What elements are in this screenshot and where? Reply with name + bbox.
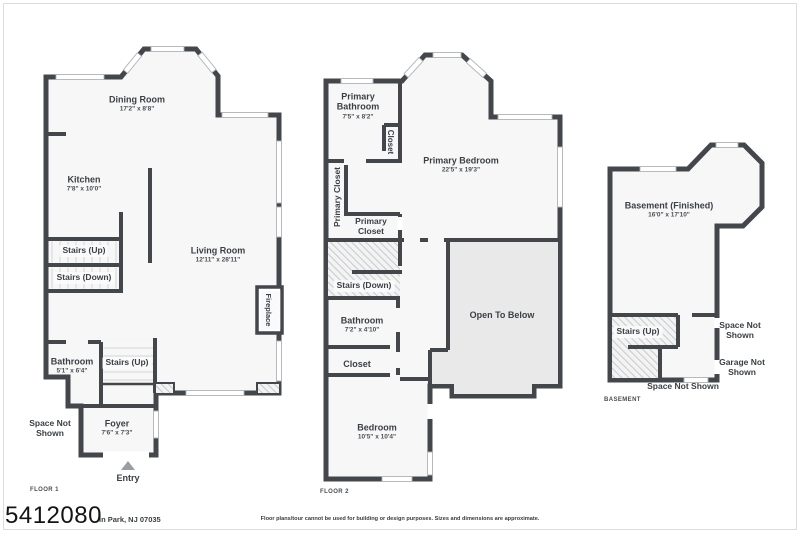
room-label-bedroom: Bedroom 10'5" x 10'4"	[357, 423, 397, 442]
watermark-number: 5412080	[5, 502, 102, 530]
label-garage-not-shown: Garage Not Shown	[715, 358, 769, 378]
room-label-bathroom-f2: Bathroom 7'2" x 4'10"	[341, 316, 384, 335]
label-space-not-shown-right: Space Not Shown	[715, 321, 765, 341]
room-label-dining-room: Dining Room 17'2" x 8'8"	[109, 95, 165, 114]
basement-plan	[610, 143, 762, 383]
floor-plan-page: Dining Room 17'2" x 8'8" Kitchen 7'8" x …	[0, 0, 800, 533]
room-label-stairs-up-basement: Stairs (Up)	[614, 326, 663, 338]
caption-basement: BASEMENT	[604, 397, 641, 403]
bedroom-door-opening	[428, 404, 433, 419]
basement-stairs-hatch	[612, 345, 658, 378]
room-label-bathroom-f1: Bathroom 5'1" x 6'4"	[51, 357, 94, 376]
closet-door-opening	[398, 217, 403, 230]
room-label-primary-bedroom: Primary Bedroom 22'5" x 19'3"	[423, 156, 499, 175]
label-space-not-shown-bottom: Space Not Shown	[647, 382, 719, 392]
room-label-closet-f2: Closet	[343, 359, 371, 369]
room-label-kitchen: Kitchen 7'8" x 10'0"	[67, 175, 102, 194]
entry-door-opening	[103, 452, 149, 459]
porch-post	[155, 383, 174, 394]
room-label-primary-closet-corridor: Primary Closet	[327, 167, 345, 227]
room-label-stairs-down-f2: Stairs (Down)	[334, 280, 395, 292]
room-label-primary-bathroom: Primary Bathroom 7'5" x 8'2"	[332, 91, 384, 120]
room-label-basement-finished: Basement (Finished) 16'0" x 17'10"	[625, 201, 714, 220]
room-label-closet-small: Closet	[383, 130, 401, 154]
room-label-stairs-up-main: Stairs (Up)	[60, 245, 109, 257]
room-label-stairs-up-entry: Stairs (Up)	[103, 357, 152, 369]
label-fireplace: Fireplace	[260, 291, 280, 330]
label-space-not-shown-f1: Space Not Shown	[26, 419, 74, 439]
floor-plan-graphic	[0, 0, 800, 533]
entry-arrow-icon	[121, 461, 135, 470]
caption-floor1: FLOOR 1	[30, 487, 59, 493]
label-open-to-below: Open To Below	[470, 310, 535, 320]
room-label-primary-closet-room: Primary Closet	[349, 217, 393, 237]
caption-floor2: FLOOR 2	[320, 489, 349, 495]
porch-post	[257, 383, 280, 394]
room-label-living-room: Living Room 12'11" x 28'11"	[191, 246, 246, 265]
address-text: ln Park, NJ 07035	[99, 515, 161, 524]
room-label-foyer: Foyer 7'6" x 7'3"	[102, 419, 133, 438]
label-entry: Entry	[116, 473, 139, 483]
room-label-stairs-down: Stairs (Down)	[54, 272, 115, 284]
